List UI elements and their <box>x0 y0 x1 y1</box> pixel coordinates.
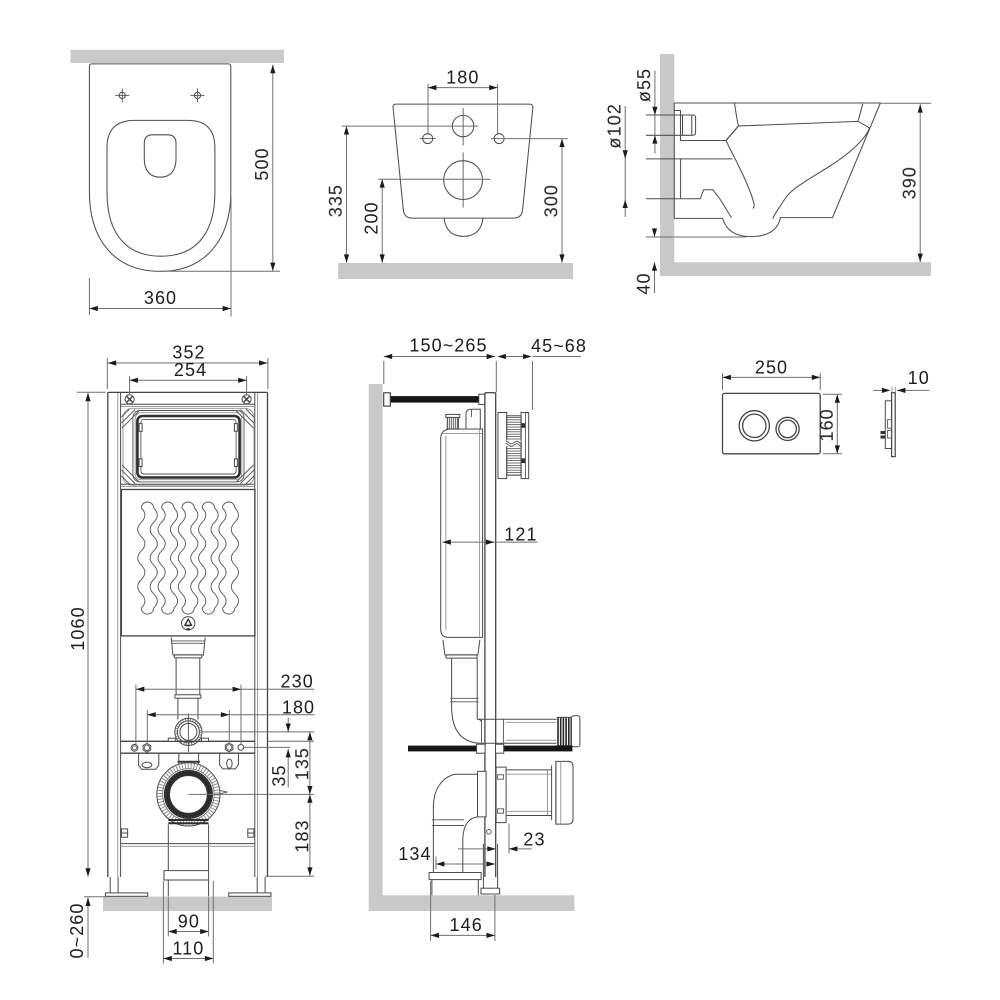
svg-text:90: 90 <box>178 911 200 931</box>
svg-text:110: 110 <box>172 938 204 958</box>
svg-text:40: 40 <box>634 272 654 294</box>
svg-text:146: 146 <box>450 915 483 935</box>
svg-text:45~68: 45~68 <box>531 336 587 356</box>
svg-text:1060: 1060 <box>68 606 88 650</box>
svg-text:23: 23 <box>523 830 545 850</box>
svg-text:ø55: ø55 <box>634 68 654 102</box>
svg-text:200: 200 <box>362 201 382 234</box>
svg-text:10: 10 <box>908 368 930 388</box>
svg-text:135: 135 <box>292 747 312 780</box>
svg-text:180: 180 <box>446 67 479 87</box>
svg-text:335: 335 <box>326 184 346 217</box>
svg-text:121: 121 <box>504 525 537 545</box>
svg-text:230: 230 <box>281 671 314 691</box>
svg-text:390: 390 <box>900 166 920 199</box>
svg-text:0~260: 0~260 <box>67 902 87 958</box>
svg-text:500: 500 <box>252 147 272 180</box>
svg-text:250: 250 <box>755 357 788 377</box>
svg-text:254: 254 <box>174 360 207 380</box>
svg-text:300: 300 <box>541 184 561 217</box>
svg-text:ø102: ø102 <box>605 103 625 148</box>
svg-text:35: 35 <box>269 764 289 786</box>
svg-text:183: 183 <box>292 819 312 852</box>
svg-text:160: 160 <box>817 408 837 441</box>
svg-text:134: 134 <box>398 844 431 864</box>
svg-text:360: 360 <box>144 288 177 308</box>
svg-text:150~265: 150~265 <box>409 336 487 356</box>
svg-text:180: 180 <box>282 698 315 718</box>
